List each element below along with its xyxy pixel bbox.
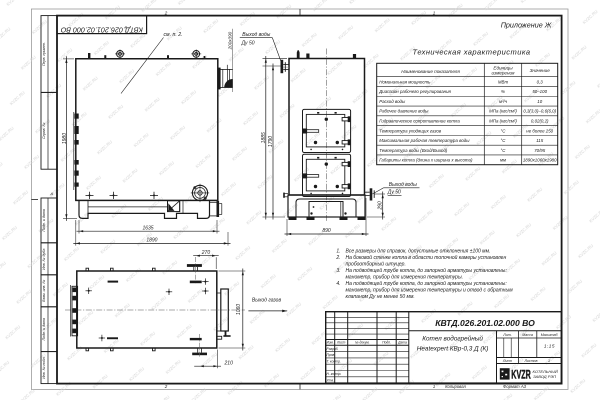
svg-text:Пров.: Пров. bbox=[327, 353, 336, 357]
svg-text:0,3(3,0)–0,6(6,0): 0,3(3,0)–0,6(6,0) bbox=[523, 109, 556, 114]
svg-text:1060: 1060 bbox=[236, 304, 242, 315]
svg-text:Техническая характеристика: Техническая характеристика bbox=[413, 48, 531, 57]
svg-text:70/95: 70/95 bbox=[534, 148, 546, 153]
svg-text:МВт: МВт bbox=[498, 79, 509, 84]
svg-text:Выход газов: Выход газов bbox=[252, 298, 282, 304]
svg-text:%: % bbox=[501, 89, 505, 94]
svg-text:Диапазон рабочего регулировани: Диапазон рабочего регулирования bbox=[378, 89, 451, 94]
svg-text:Масштаб: Масштаб bbox=[541, 333, 559, 337]
svg-text:1.: 1. bbox=[336, 249, 340, 255]
svg-text:Разраб.: Разраб. bbox=[327, 347, 339, 351]
svg-text:Взам. инв. №: Взам. инв. № bbox=[42, 280, 46, 302]
svg-text:КВТД.026.201.02.000 ВО: КВТД.026.201.02.000 ВО bbox=[435, 318, 535, 328]
svg-text:Лист: Лист bbox=[502, 359, 512, 363]
svg-text:KVZR: KVZR bbox=[511, 370, 531, 382]
svg-text:Значение: Значение bbox=[530, 68, 551, 73]
svg-text:Перв. примен.: Перв. примен. bbox=[42, 42, 46, 66]
svg-text:Температура уходящих газов: Температура уходящих газов bbox=[379, 128, 442, 133]
svg-text:50–100: 50–100 bbox=[532, 89, 547, 94]
svg-text:Копировал: Копировал bbox=[445, 384, 466, 389]
svg-text:1: 1 bbox=[433, 384, 435, 389]
svg-text:Наименование показателя: Наименование показателя bbox=[401, 69, 460, 74]
svg-text:Ду 50: Ду 50 bbox=[387, 190, 401, 196]
svg-text:200х390: 200х390 bbox=[227, 31, 232, 50]
svg-text:1790: 1790 bbox=[268, 136, 274, 147]
svg-text:Т. контр.: Т. контр. bbox=[327, 360, 341, 364]
svg-text:Дата: Дата bbox=[397, 340, 407, 344]
svg-text:Подп.: Подп. bbox=[382, 340, 391, 344]
svg-text:ЗАВОД РЭП: ЗАВОД РЭП bbox=[533, 374, 556, 379]
svg-text:0,3: 0,3 bbox=[537, 79, 544, 84]
svg-text:Номинальная мощность: Номинальная мощность bbox=[379, 79, 431, 84]
svg-text:1980: 1980 bbox=[62, 133, 68, 144]
svg-text:Heatexpert КВр-0,3 Д (К): Heatexpert КВр-0,3 Д (К) bbox=[417, 345, 489, 352]
svg-text:Ду 50: Ду 50 bbox=[240, 41, 254, 47]
svg-text:Инв. № дубл.: Инв. № дубл. bbox=[42, 248, 46, 270]
svg-text:Гидравлическое сопротивление к: Гидравлическое сопротивление котла bbox=[379, 119, 460, 124]
svg-text:Изм.: Изм. bbox=[327, 340, 334, 344]
svg-text:0,02(0,2): 0,02(0,2) bbox=[531, 119, 549, 124]
svg-text:1: 1 bbox=[548, 359, 550, 363]
svg-text:манометр, прибор для измерения: манометр, прибор для измерения температу… bbox=[346, 287, 514, 293]
svg-text:Подп. и дата: Подп. и дата bbox=[42, 318, 46, 341]
svg-text:клапаном Ду не менее 50 мм.: клапаном Ду не менее 50 мм. bbox=[346, 294, 415, 300]
svg-text:2: 2 bbox=[164, 11, 168, 16]
svg-text:Формат А3: Формат А3 bbox=[503, 384, 527, 389]
svg-text:2.: 2. bbox=[335, 255, 340, 261]
svg-text:115: 115 bbox=[536, 138, 544, 143]
svg-text:°С: °С bbox=[501, 128, 507, 133]
svg-text:манометр, прибор для измерения: манометр, прибор для измерения температу… bbox=[346, 274, 464, 280]
svg-text:1890х1060х1980: 1890х1060х1980 bbox=[523, 158, 557, 163]
svg-text:°С: °С bbox=[501, 148, 507, 153]
svg-text:м³/ч: м³/ч bbox=[499, 99, 508, 104]
svg-text:210: 210 bbox=[224, 361, 234, 367]
svg-text:2: 2 bbox=[164, 384, 168, 389]
svg-text:см. п. 2.: см. п. 2. bbox=[163, 32, 182, 38]
svg-text:Расход воды: Расход воды bbox=[379, 99, 406, 104]
svg-text:Все размеры для справок, допус: Все размеры для справок, допустимые откл… bbox=[346, 249, 491, 255]
svg-text:Лит.: Лит. bbox=[502, 333, 511, 337]
svg-text:Справ. №: Справ. № bbox=[42, 123, 46, 139]
svg-text:1:15: 1:15 bbox=[544, 343, 555, 348]
svg-text:3.: 3. bbox=[336, 268, 340, 274]
svg-text:Котел водогрейный: Котел водогрейный bbox=[422, 335, 483, 343]
svg-text:На подводящей трубе котла, до: На подводящей трубе котла, до запорной а… bbox=[346, 280, 508, 287]
svg-text:290: 290 bbox=[378, 201, 384, 211]
svg-text:Листов: Листов bbox=[523, 359, 537, 363]
svg-text:1885: 1885 bbox=[261, 132, 267, 143]
svg-text:измерения: измерения bbox=[492, 71, 516, 76]
svg-text:Рабочее давление воды: Рабочее давление воды bbox=[379, 109, 429, 114]
svg-text:Приложение Ж: Приложение Ж bbox=[501, 21, 552, 30]
svg-text:МПа (кгс/см²): МПа (кгс/см²) bbox=[489, 119, 517, 124]
svg-text:КВТД.026.201.02.000 ВО: КВТД.026.201.02.000 ВО bbox=[60, 26, 142, 35]
svg-text:не более 250: не более 250 bbox=[526, 128, 553, 133]
svg-text:На боковой стенке котла в обла: На боковой стенке котла в области топочн… bbox=[346, 254, 507, 261]
svg-text:Габариты котла (длина х ширина: Габариты котла (длина х ширина х высота) bbox=[379, 158, 473, 163]
svg-text:МПа (кгс/см²): МПа (кгс/см²) bbox=[489, 109, 517, 114]
svg-text:10: 10 bbox=[537, 99, 542, 104]
svg-text:Инв. № подл.: Инв. № подл. bbox=[42, 356, 46, 378]
svg-text:1890: 1890 bbox=[146, 238, 157, 244]
svg-text:1635: 1635 bbox=[142, 225, 153, 231]
svg-text:°С: °С bbox=[501, 138, 507, 143]
svg-text:пробоотборный штуцер.: пробоотборный штуцер. bbox=[346, 261, 406, 268]
svg-text:мм: мм bbox=[500, 158, 506, 163]
svg-text:Выход воды: Выход воды bbox=[389, 182, 417, 188]
svg-text:Утв.: Утв. bbox=[327, 378, 335, 382]
svg-text:Выход воды: Выход воды bbox=[242, 32, 270, 38]
svg-text:На подводящей трубе котла, до: На подводящей трубе котла, до запорной а… bbox=[346, 267, 508, 274]
svg-text:890: 890 bbox=[322, 228, 331, 234]
svg-text:А: А bbox=[49, 191, 53, 196]
svg-text:Лист: Лист bbox=[336, 340, 346, 344]
svg-text:Температура воды (Вход/Выход): Температура воды (Вход/Выход) bbox=[379, 148, 448, 153]
svg-text:Масса: Масса bbox=[522, 333, 533, 337]
svg-text:Подп. и дата: Подп. и дата bbox=[42, 209, 46, 232]
svg-text:Максимальная рабочая температу: Максимальная рабочая температура воды bbox=[379, 138, 470, 143]
svg-text:4.: 4. bbox=[336, 281, 340, 287]
svg-text:270: 270 bbox=[201, 250, 211, 256]
svg-text:№ докум.: № докум. bbox=[355, 340, 370, 344]
svg-text:Н. контр.: Н. контр. bbox=[327, 372, 342, 376]
